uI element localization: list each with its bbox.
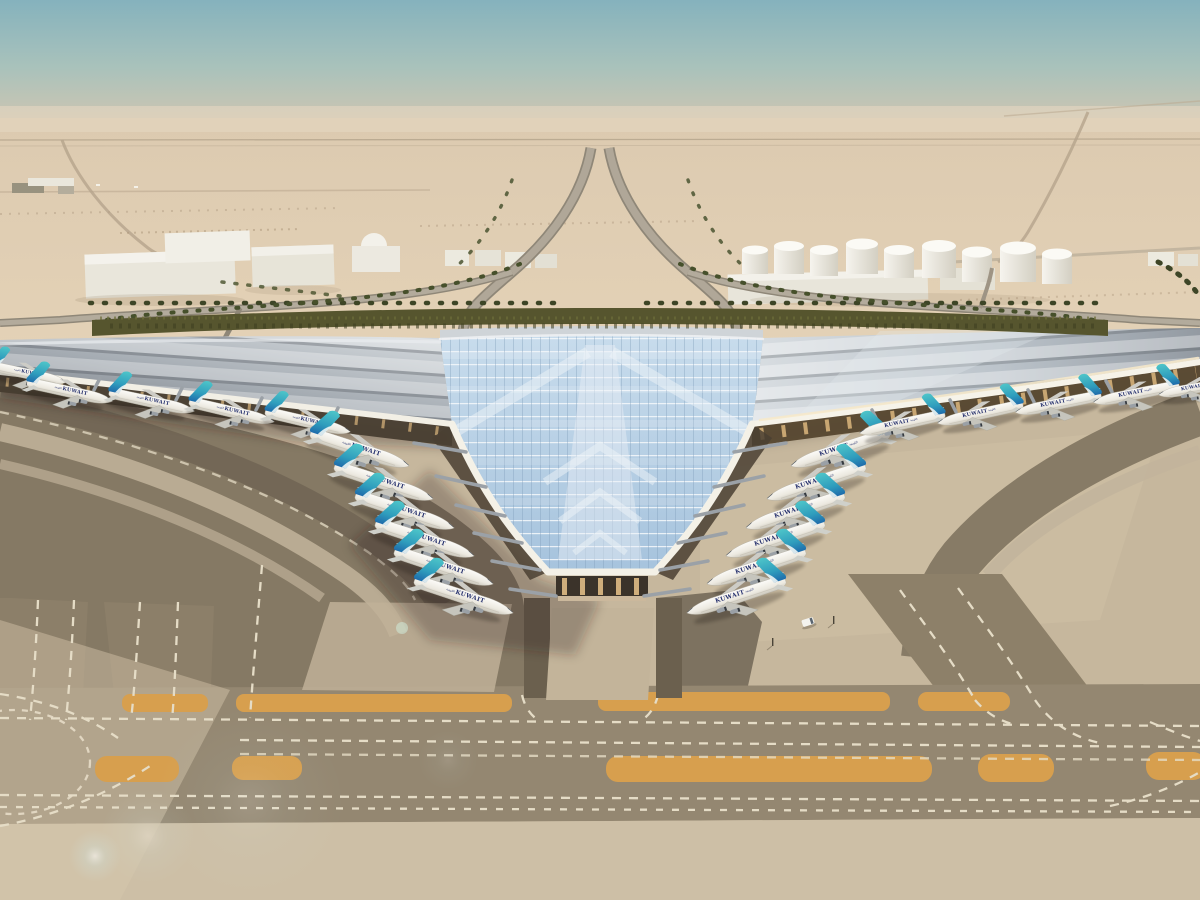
fuel-tank-farm — [728, 239, 1072, 308]
airport-rendering: KUWAIT الكويتية KUWAIT الكويتية — [0, 0, 1200, 900]
right-small-buildings — [1148, 252, 1198, 266]
entrance-portico — [556, 576, 648, 601]
